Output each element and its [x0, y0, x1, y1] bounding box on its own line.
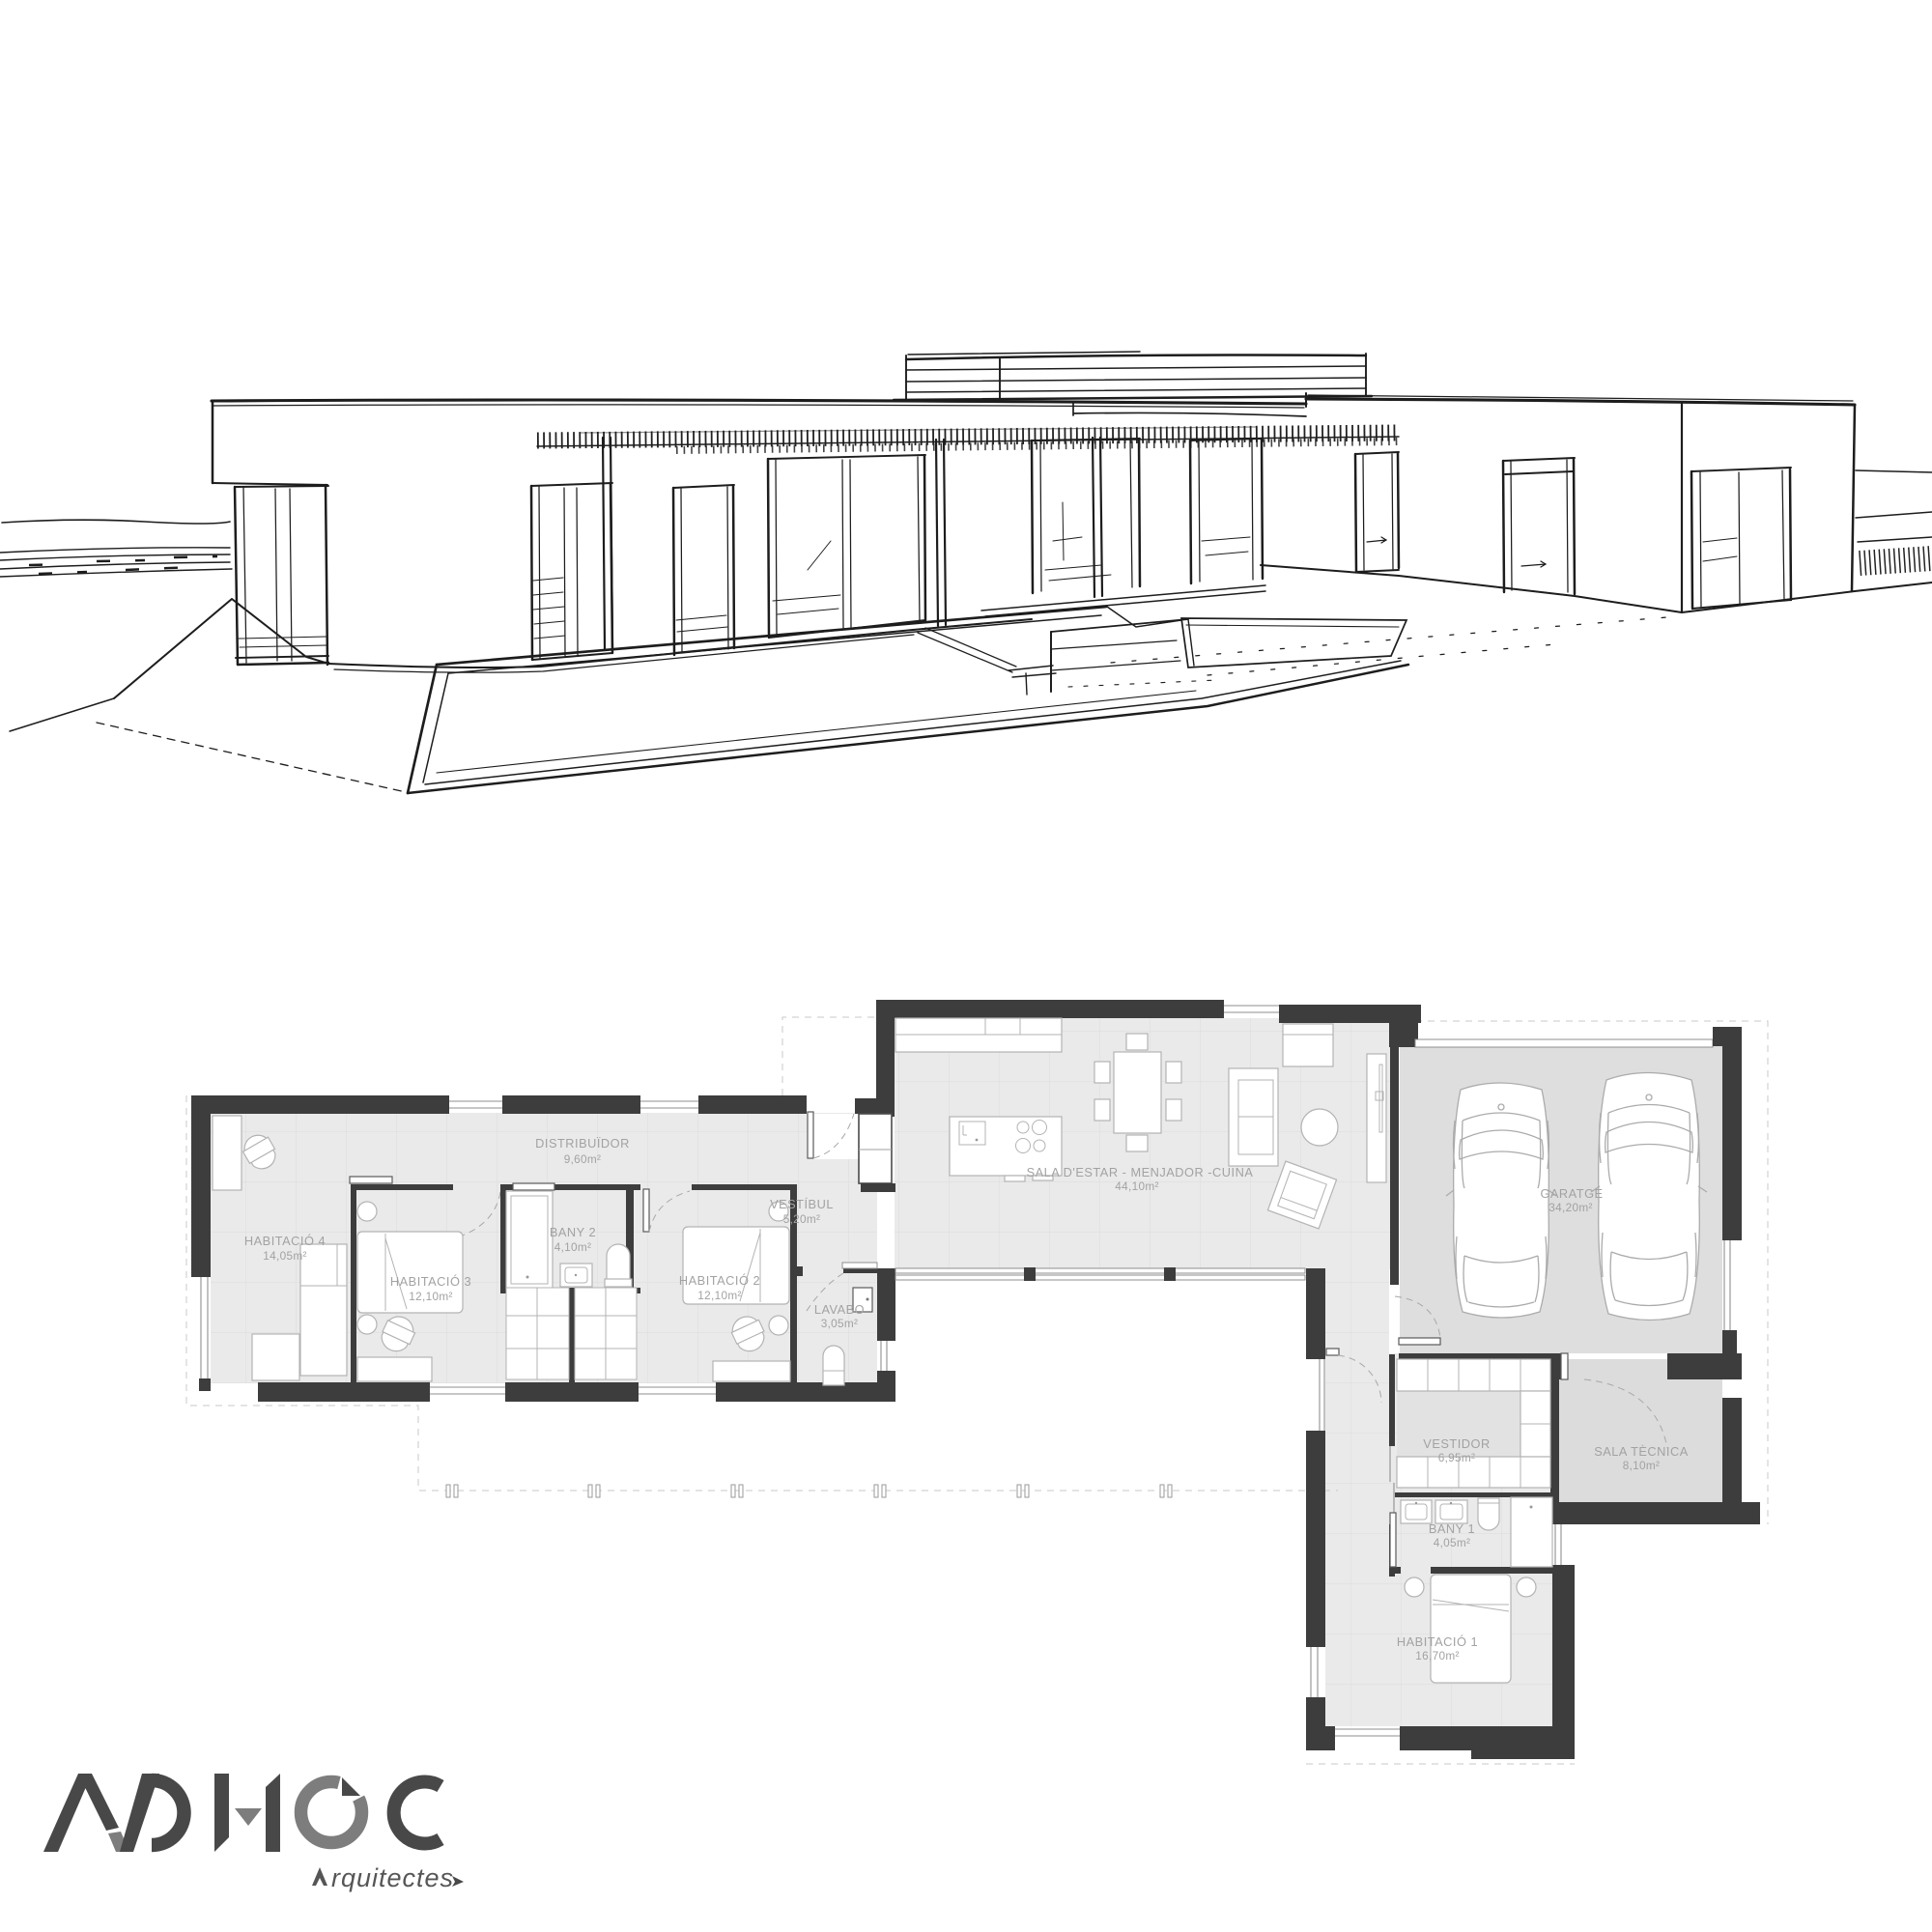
- svg-text:12,10m²: 12,10m²: [697, 1289, 741, 1302]
- svg-text:HABITACIÓ 4: HABITACIÓ 4: [244, 1234, 326, 1248]
- svg-text:BANY 1: BANY 1: [1429, 1521, 1475, 1536]
- svg-text:6,95m²: 6,95m²: [1438, 1451, 1476, 1464]
- svg-text:GARATGE: GARATGE: [1540, 1186, 1603, 1201]
- svg-text:SALA TÈCNICA: SALA TÈCNICA: [1594, 1444, 1689, 1459]
- svg-text:HABITACIÓ 1: HABITACIÓ 1: [1397, 1634, 1478, 1649]
- svg-text:9,60m²: 9,60m²: [564, 1152, 602, 1166]
- svg-text:SALA D'ESTAR - MENJADOR -CUINA: SALA D'ESTAR - MENJADOR -CUINA: [1027, 1165, 1254, 1179]
- svg-text:DISTRIBUÏDOR: DISTRIBUÏDOR: [535, 1136, 630, 1151]
- svg-text:BANY 2: BANY 2: [550, 1225, 596, 1239]
- svg-text:5,20m²: 5,20m²: [783, 1212, 821, 1226]
- svg-text:HABITACIÓ 3: HABITACIÓ 3: [390, 1274, 471, 1289]
- svg-text:LAVABO: LAVABO: [814, 1302, 865, 1317]
- svg-text:34,20m²: 34,20m²: [1548, 1201, 1592, 1214]
- svg-text:14,05m²: 14,05m²: [263, 1249, 306, 1263]
- svg-text:3,05m²: 3,05m²: [821, 1317, 859, 1330]
- svg-text:VESTÍBUL: VESTÍBUL: [770, 1197, 834, 1211]
- svg-text:12,10m²: 12,10m²: [409, 1290, 452, 1303]
- svg-text:8,10m²: 8,10m²: [1623, 1459, 1661, 1472]
- svg-text:4,10m²: 4,10m²: [554, 1240, 592, 1254]
- svg-text:VESTIDOR: VESTIDOR: [1423, 1436, 1490, 1451]
- svg-text:4,05m²: 4,05m²: [1434, 1536, 1471, 1549]
- svg-text:HABITACIÓ 2: HABITACIÓ 2: [679, 1273, 760, 1288]
- svg-text:16,70m²: 16,70m²: [1415, 1649, 1459, 1662]
- svg-text:rquitectes: rquitectes: [331, 1863, 454, 1892]
- svg-text:44,10m²: 44,10m²: [1115, 1179, 1158, 1193]
